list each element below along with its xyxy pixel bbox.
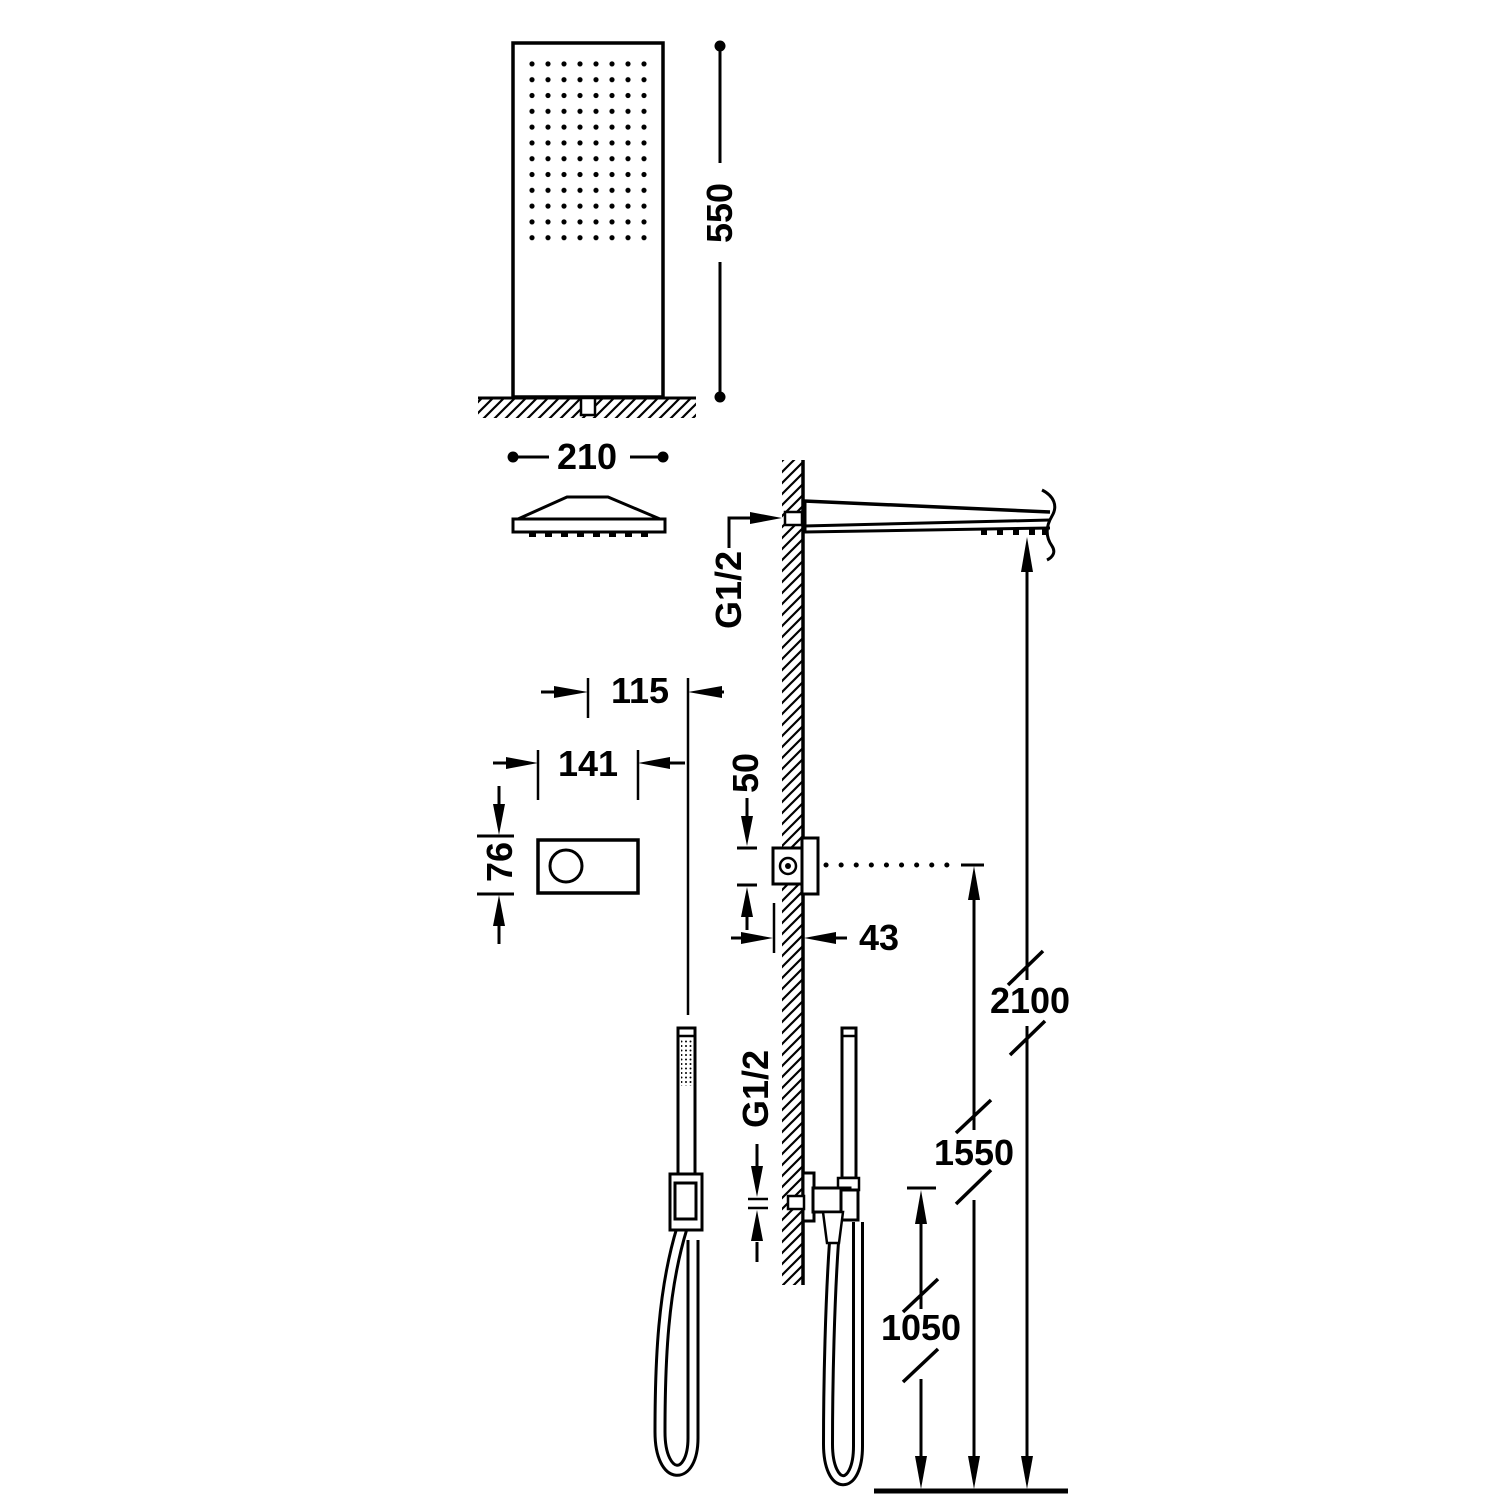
- shower-head-profile-view: [513, 497, 665, 537]
- dim-label-50: 50: [728, 753, 764, 793]
- control-flange-side: [802, 838, 818, 894]
- dim-label-43: 43: [859, 920, 899, 956]
- arrowhead: [750, 512, 782, 524]
- hand-shower-handle-side: [842, 1028, 856, 1178]
- hand-shower-spray-face: [681, 1039, 692, 1086]
- shower-spray-dot-grid: [524, 56, 652, 244]
- water-outlet-stub: [788, 1196, 804, 1209]
- profile-dome: [518, 497, 660, 519]
- hand-shower-front-view: [660, 1028, 702, 1470]
- arm-wall-inlet: [785, 512, 802, 525]
- hose-connector-cone: [823, 1212, 843, 1243]
- dim-label-g12-outlet: G1/2: [738, 1050, 774, 1128]
- inlet-connector-tab: [581, 398, 595, 415]
- dim-50-linework: [737, 798, 757, 930]
- hand-shower-sleeve-front: [675, 1183, 696, 1219]
- dim-label-76: 76: [482, 842, 518, 882]
- dim-label-1550: 1550: [934, 1135, 1014, 1171]
- control-plate: [538, 840, 638, 893]
- shower-arm-side-view: [785, 490, 1055, 560]
- dim-label-2100: 2100: [990, 983, 1070, 1019]
- dim-g12-arm-linework: [729, 512, 782, 548]
- dim-label-550: 550: [702, 183, 738, 243]
- wall-section-top: [478, 398, 696, 418]
- dim-label-210: 210: [557, 439, 617, 475]
- drawing-linework: [0, 0, 1500, 1500]
- technical-drawing-canvas: 550 210 115 141 76 50 43 G1/2 G1/2 2100 …: [0, 0, 1500, 1500]
- profile-base-plate: [513, 519, 665, 532]
- thermostatic-control-front-view: [538, 840, 638, 893]
- arm-break-mark: [1042, 490, 1055, 560]
- overhead-shower-front-view: [513, 43, 663, 397]
- dim-1550-linework: [956, 866, 991, 1489]
- dim-label-g12-arm: G1/2: [711, 551, 747, 629]
- dim-label-141: 141: [558, 746, 618, 782]
- dim-label-115: 115: [611, 673, 669, 709]
- dim-label-1050: 1050: [881, 1310, 961, 1346]
- dim-g12-outlet-linework: [748, 1144, 768, 1262]
